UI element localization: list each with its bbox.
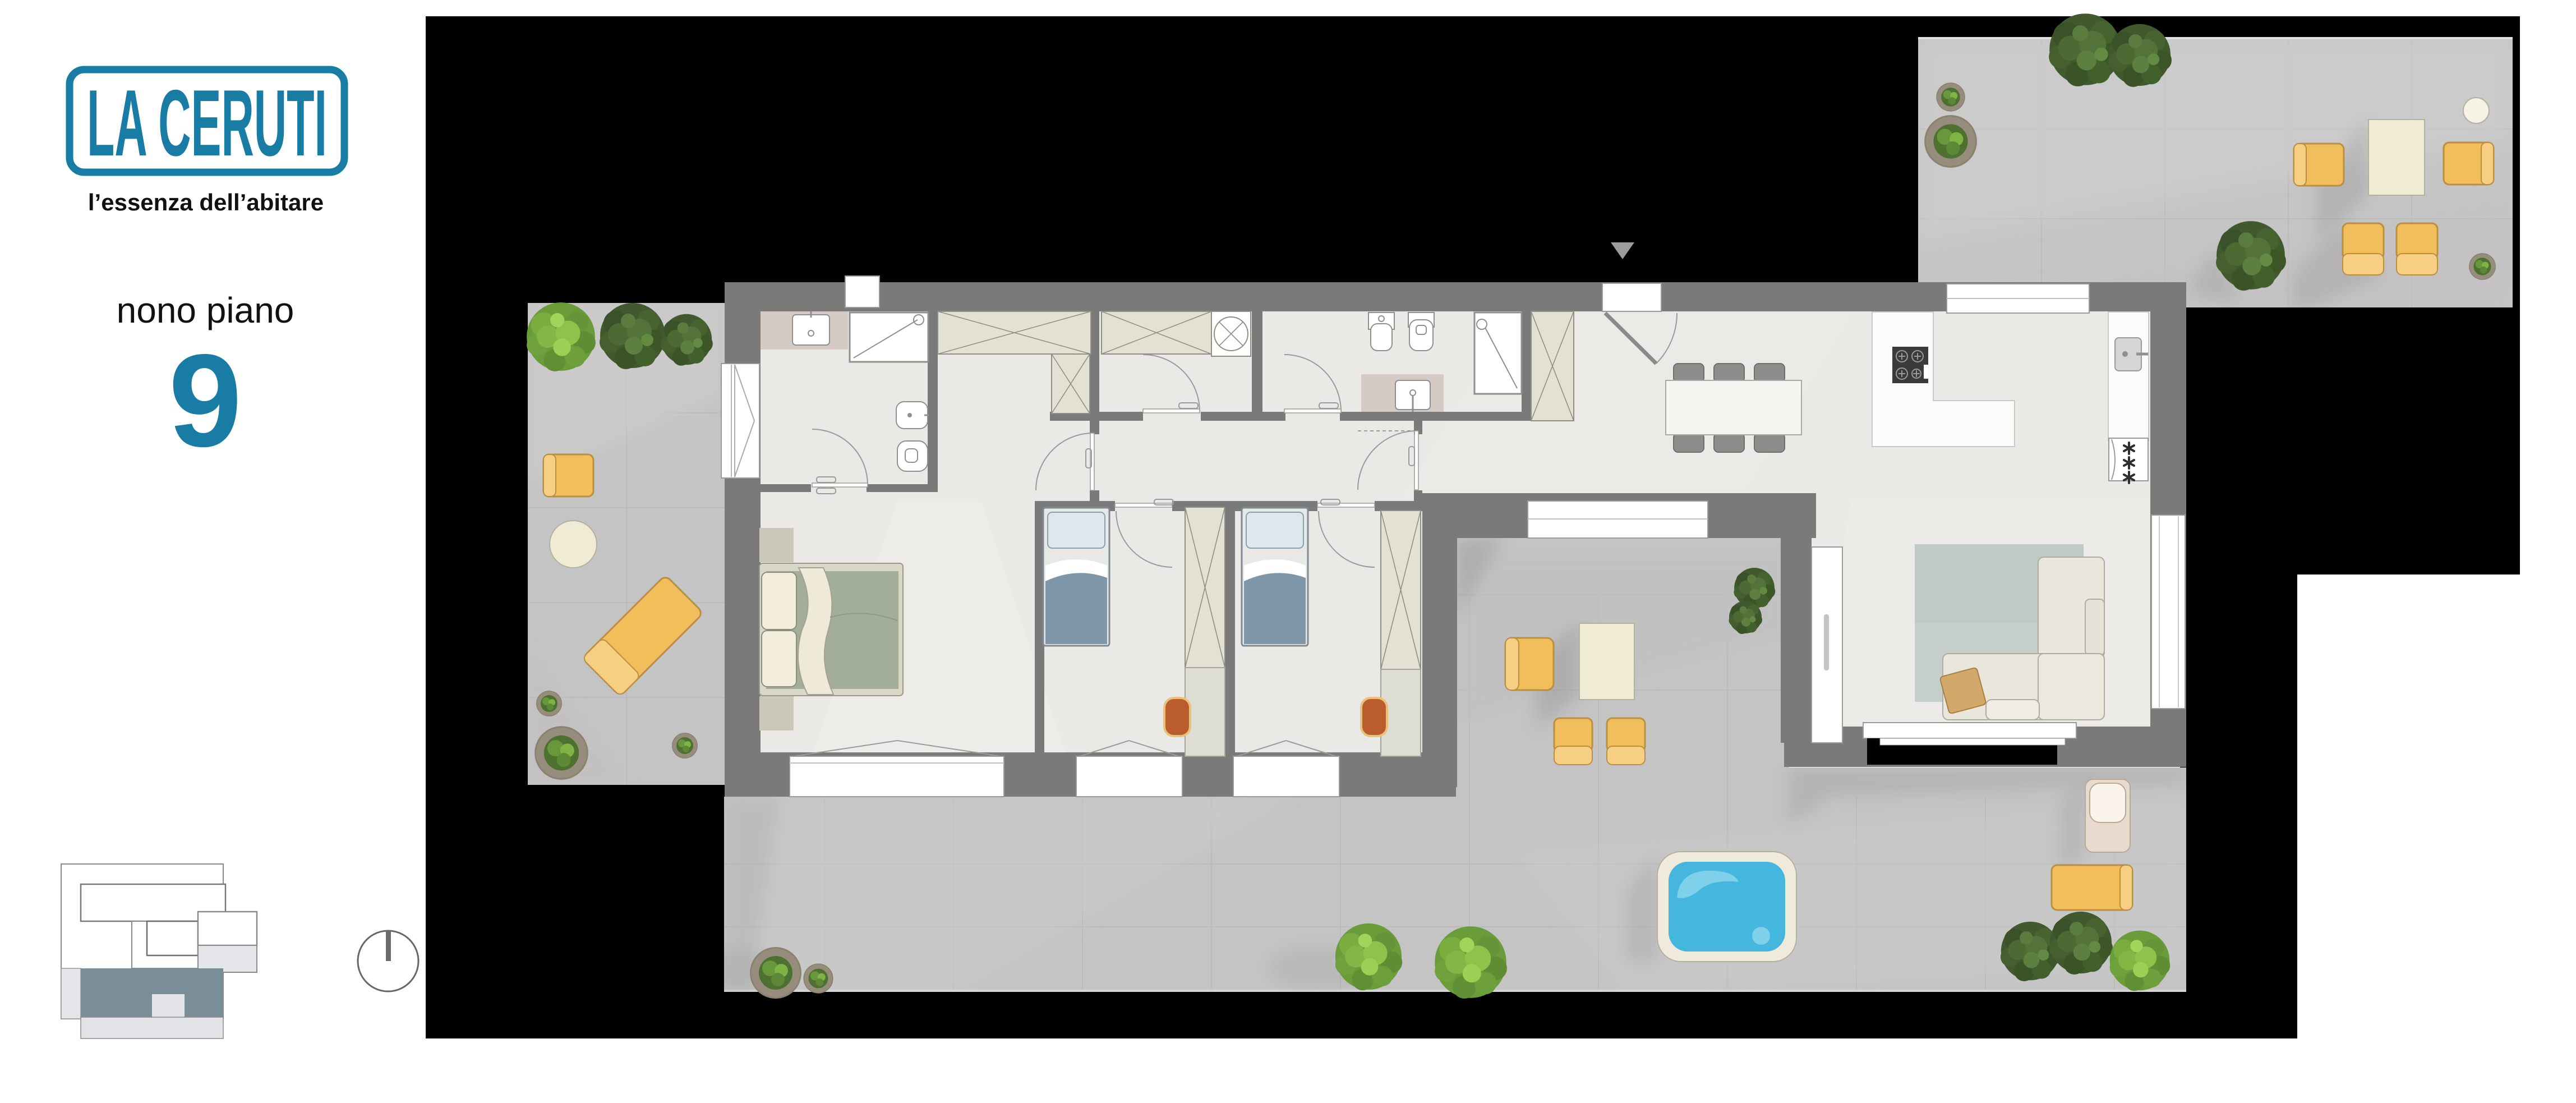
svg-text:nono piano: nono piano <box>117 290 294 330</box>
svg-text:9: 9 <box>169 327 242 474</box>
svg-text:l’essenza dell’abitare: l’essenza dell’abitare <box>88 189 324 215</box>
svg-text:LA CERUTI: LA CERUTI <box>87 70 327 176</box>
